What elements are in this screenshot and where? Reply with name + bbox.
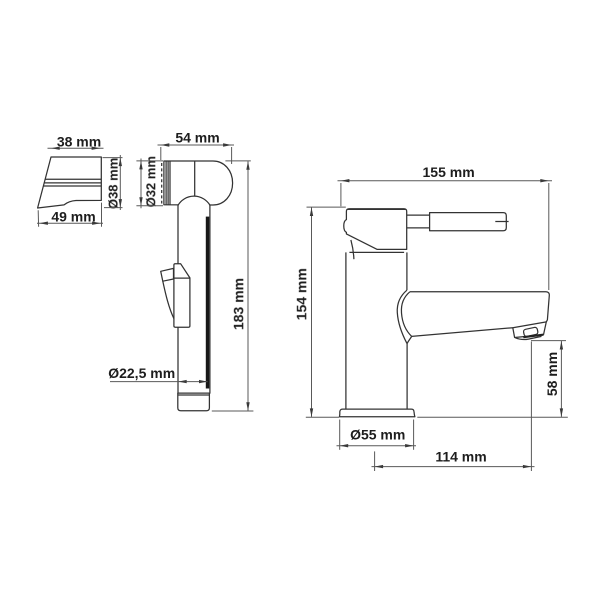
svg-text:114 mm: 114 mm <box>435 449 486 465</box>
svg-text:154 mm: 154 mm <box>293 268 309 320</box>
svg-text:49 mm: 49 mm <box>51 208 95 224</box>
svg-text:155 mm: 155 mm <box>423 164 475 180</box>
svg-text:183 mm: 183 mm <box>230 278 246 330</box>
svg-text:Ø55 mm: Ø55 mm <box>350 427 405 443</box>
svg-text:54 mm: 54 mm <box>175 130 219 146</box>
svg-text:38 mm: 38 mm <box>57 133 101 149</box>
svg-text:58 mm: 58 mm <box>544 352 560 396</box>
svg-text:Ø22,5 mm: Ø22,5 mm <box>108 365 175 381</box>
svg-text:Ø32 mm: Ø32 mm <box>143 156 158 207</box>
svg-text:Ø38 mm: Ø38 mm <box>106 158 121 209</box>
